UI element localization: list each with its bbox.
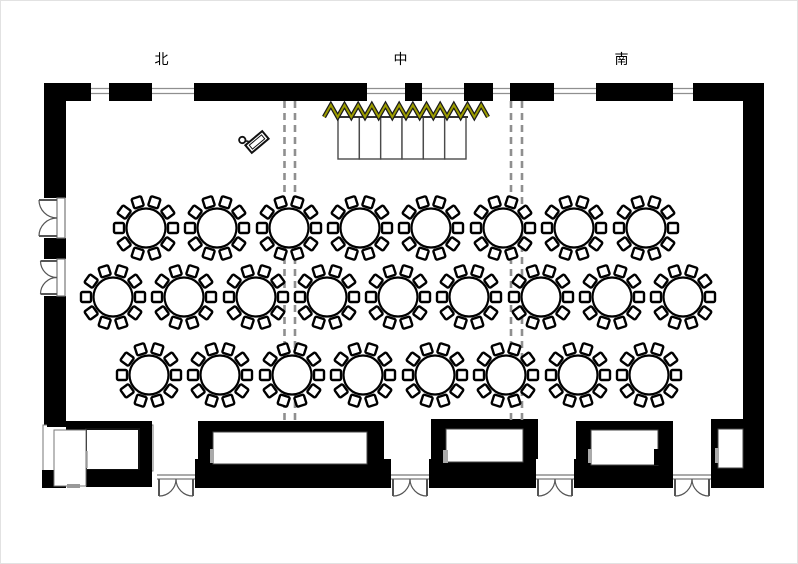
chair bbox=[362, 196, 375, 209]
chair bbox=[668, 223, 678, 233]
dining-table bbox=[260, 343, 324, 407]
chair bbox=[331, 370, 341, 380]
dining-table bbox=[474, 343, 538, 407]
wall-top-pier bbox=[194, 83, 367, 101]
chair bbox=[188, 370, 198, 380]
chair bbox=[383, 265, 396, 278]
chair bbox=[135, 292, 145, 302]
chair bbox=[491, 292, 501, 302]
chair bbox=[349, 292, 359, 302]
table-top bbox=[593, 278, 632, 317]
chair bbox=[705, 292, 715, 302]
chair bbox=[222, 394, 235, 407]
dining-table bbox=[152, 265, 216, 329]
chair bbox=[219, 196, 232, 209]
chair bbox=[420, 292, 430, 302]
chair bbox=[634, 292, 644, 302]
chair bbox=[98, 316, 111, 329]
dining-table bbox=[224, 265, 288, 329]
dining-table bbox=[257, 196, 321, 260]
table-top bbox=[412, 209, 451, 248]
chair bbox=[169, 316, 182, 329]
dining-table bbox=[580, 265, 644, 329]
chair bbox=[219, 247, 232, 260]
double-door-bottom bbox=[673, 459, 711, 496]
chair bbox=[202, 247, 215, 260]
wall-top-pier bbox=[510, 83, 554, 101]
table-top bbox=[198, 209, 237, 248]
chair bbox=[420, 343, 433, 356]
chair bbox=[651, 292, 661, 302]
table-top bbox=[484, 209, 523, 248]
table-top bbox=[555, 209, 594, 248]
chair bbox=[241, 265, 254, 278]
chair bbox=[312, 316, 325, 329]
chair bbox=[580, 292, 590, 302]
chair bbox=[365, 343, 378, 356]
chair bbox=[420, 394, 433, 407]
chair bbox=[403, 370, 413, 380]
double-door-bottom bbox=[157, 459, 195, 496]
table-top bbox=[450, 278, 489, 317]
chair bbox=[437, 292, 447, 302]
chair bbox=[185, 223, 195, 233]
chair bbox=[169, 265, 182, 278]
dining-table bbox=[117, 343, 181, 407]
chair bbox=[454, 316, 467, 329]
wall-left-pier bbox=[44, 238, 66, 259]
chair bbox=[559, 196, 572, 209]
chair bbox=[505, 196, 518, 209]
table-top bbox=[379, 278, 418, 317]
head-table-cell bbox=[359, 117, 380, 159]
double-door-bottom bbox=[391, 459, 429, 496]
dining-table bbox=[509, 265, 573, 329]
chair bbox=[634, 343, 647, 356]
chair bbox=[81, 292, 91, 302]
chair bbox=[488, 247, 501, 260]
chair bbox=[260, 370, 270, 380]
chair bbox=[314, 370, 324, 380]
chair bbox=[508, 343, 521, 356]
chair bbox=[453, 223, 463, 233]
table-top bbox=[416, 356, 455, 395]
chair bbox=[311, 223, 321, 233]
chair bbox=[433, 196, 446, 209]
chair bbox=[206, 292, 216, 302]
chair bbox=[224, 292, 234, 302]
chair bbox=[98, 265, 111, 278]
chair bbox=[505, 247, 518, 260]
dining-table bbox=[614, 196, 678, 260]
chair bbox=[471, 265, 484, 278]
lectern-icon bbox=[238, 124, 269, 154]
chair bbox=[131, 196, 144, 209]
chair bbox=[151, 343, 164, 356]
chair bbox=[274, 247, 287, 260]
chair bbox=[457, 370, 467, 380]
table-top bbox=[308, 278, 347, 317]
head-table-cell bbox=[338, 117, 359, 159]
table-top bbox=[201, 356, 240, 395]
chair bbox=[345, 196, 358, 209]
dining-table bbox=[399, 196, 463, 260]
chair bbox=[563, 292, 573, 302]
dining-table bbox=[546, 343, 610, 407]
chair bbox=[382, 223, 392, 233]
chair bbox=[433, 247, 446, 260]
dining-table bbox=[437, 265, 501, 329]
dining-table bbox=[617, 343, 681, 407]
chair bbox=[416, 196, 429, 209]
dining-table bbox=[331, 343, 395, 407]
chair bbox=[597, 316, 610, 329]
table-top bbox=[270, 209, 309, 248]
dining-table bbox=[471, 196, 535, 260]
chair bbox=[580, 343, 593, 356]
chair bbox=[134, 343, 147, 356]
chair bbox=[186, 265, 199, 278]
chair bbox=[526, 265, 539, 278]
chair bbox=[277, 343, 290, 356]
chair bbox=[241, 316, 254, 329]
chair bbox=[294, 394, 307, 407]
chair bbox=[543, 316, 556, 329]
chair bbox=[576, 247, 589, 260]
table-top bbox=[630, 356, 669, 395]
chair bbox=[491, 343, 504, 356]
wall-top-pier bbox=[596, 83, 673, 101]
table-top bbox=[522, 278, 561, 317]
table-top bbox=[237, 278, 276, 317]
chair bbox=[416, 247, 429, 260]
chair bbox=[596, 223, 606, 233]
chair bbox=[186, 316, 199, 329]
dining-table bbox=[651, 265, 715, 329]
chair bbox=[151, 394, 164, 407]
double-door-left bbox=[39, 198, 66, 238]
chair bbox=[685, 316, 698, 329]
table-top bbox=[165, 278, 204, 317]
chair bbox=[671, 370, 681, 380]
chair bbox=[205, 394, 218, 407]
wall-top-pier bbox=[109, 83, 152, 101]
head-table-cell bbox=[445, 117, 466, 159]
head-table-cell bbox=[402, 117, 423, 159]
head-table-cell bbox=[423, 117, 444, 159]
chair bbox=[631, 247, 644, 260]
table-top bbox=[487, 356, 526, 395]
corner-block-right bbox=[711, 419, 764, 488]
chair bbox=[399, 223, 409, 233]
floor-plan-canvas: 北 中 南 bbox=[0, 0, 798, 564]
chair bbox=[362, 247, 375, 260]
chair bbox=[348, 343, 361, 356]
chair bbox=[563, 343, 576, 356]
chair bbox=[257, 223, 267, 233]
chair bbox=[274, 196, 287, 209]
chair bbox=[471, 316, 484, 329]
dining-table bbox=[81, 265, 145, 329]
chair bbox=[614, 265, 627, 278]
chair bbox=[559, 247, 572, 260]
chair bbox=[651, 343, 664, 356]
chair bbox=[614, 223, 624, 233]
chair bbox=[291, 247, 304, 260]
chair bbox=[471, 223, 481, 233]
chair bbox=[634, 394, 647, 407]
chair bbox=[328, 223, 338, 233]
vestibule-alcove bbox=[431, 419, 538, 488]
dining-table bbox=[366, 265, 430, 329]
chair bbox=[294, 343, 307, 356]
corner-room-left bbox=[42, 409, 153, 488]
chair bbox=[312, 265, 325, 278]
wall-top-pier bbox=[405, 83, 422, 101]
chair bbox=[239, 223, 249, 233]
table-top bbox=[664, 278, 703, 317]
vestibule-alcove bbox=[198, 421, 384, 488]
dining-table bbox=[542, 196, 606, 260]
chair bbox=[454, 265, 467, 278]
chair bbox=[385, 370, 395, 380]
chair bbox=[631, 196, 644, 209]
chair bbox=[205, 343, 218, 356]
chair bbox=[295, 292, 305, 302]
table-top bbox=[130, 356, 169, 395]
head-table bbox=[336, 117, 468, 159]
chair bbox=[400, 265, 413, 278]
table-top bbox=[94, 278, 133, 317]
chair bbox=[365, 394, 378, 407]
chair bbox=[222, 343, 235, 356]
chair bbox=[668, 265, 681, 278]
chair bbox=[600, 370, 610, 380]
chair bbox=[668, 316, 681, 329]
chair bbox=[528, 370, 538, 380]
chair bbox=[148, 196, 161, 209]
chair bbox=[131, 247, 144, 260]
chair bbox=[400, 316, 413, 329]
chair bbox=[525, 223, 535, 233]
chair bbox=[366, 292, 376, 302]
wall-top-pier bbox=[464, 83, 493, 101]
chair bbox=[614, 316, 627, 329]
chair bbox=[117, 370, 127, 380]
chair bbox=[543, 265, 556, 278]
dining-table bbox=[328, 196, 392, 260]
chair bbox=[437, 343, 450, 356]
table-top bbox=[127, 209, 166, 248]
chair bbox=[329, 265, 342, 278]
chair bbox=[258, 265, 271, 278]
chair bbox=[148, 247, 161, 260]
chair bbox=[114, 223, 124, 233]
double-door-left bbox=[41, 259, 67, 296]
chair bbox=[648, 196, 661, 209]
chair bbox=[115, 265, 128, 278]
table-top bbox=[627, 209, 666, 248]
chair bbox=[509, 292, 519, 302]
vestibule-alcove bbox=[576, 421, 673, 488]
chair bbox=[168, 223, 178, 233]
chair bbox=[542, 223, 552, 233]
table-top bbox=[273, 356, 312, 395]
dining-table bbox=[114, 196, 178, 260]
chair bbox=[576, 196, 589, 209]
chair bbox=[278, 292, 288, 302]
chair bbox=[437, 394, 450, 407]
chair bbox=[508, 394, 521, 407]
dining-table bbox=[188, 343, 252, 407]
table-top bbox=[341, 209, 380, 248]
chair bbox=[291, 196, 304, 209]
chair bbox=[648, 247, 661, 260]
chair bbox=[348, 394, 361, 407]
chair bbox=[202, 196, 215, 209]
chair bbox=[651, 394, 664, 407]
table-top bbox=[559, 356, 598, 395]
chair bbox=[617, 370, 627, 380]
dining-table bbox=[185, 196, 249, 260]
chair bbox=[563, 394, 576, 407]
chair bbox=[597, 265, 610, 278]
wall-left bbox=[44, 296, 66, 425]
floor-plan-drawing bbox=[1, 1, 797, 563]
chair bbox=[491, 394, 504, 407]
chair bbox=[152, 292, 162, 302]
chair bbox=[258, 316, 271, 329]
chair bbox=[383, 316, 396, 329]
wall-left bbox=[44, 83, 66, 198]
chair bbox=[488, 196, 501, 209]
chair bbox=[580, 394, 593, 407]
chair bbox=[242, 370, 252, 380]
chair bbox=[474, 370, 484, 380]
chair bbox=[171, 370, 181, 380]
head-table-cell bbox=[381, 117, 402, 159]
chair bbox=[546, 370, 556, 380]
chair bbox=[526, 316, 539, 329]
chair bbox=[329, 316, 342, 329]
chair bbox=[134, 394, 147, 407]
table-top bbox=[344, 356, 383, 395]
double-door-bottom bbox=[536, 459, 574, 496]
chair bbox=[115, 316, 128, 329]
chair bbox=[277, 394, 290, 407]
zigzag-screen bbox=[324, 105, 488, 117]
chair bbox=[685, 265, 698, 278]
dining-table bbox=[295, 265, 359, 329]
chair bbox=[345, 247, 358, 260]
dining-table bbox=[403, 343, 467, 407]
